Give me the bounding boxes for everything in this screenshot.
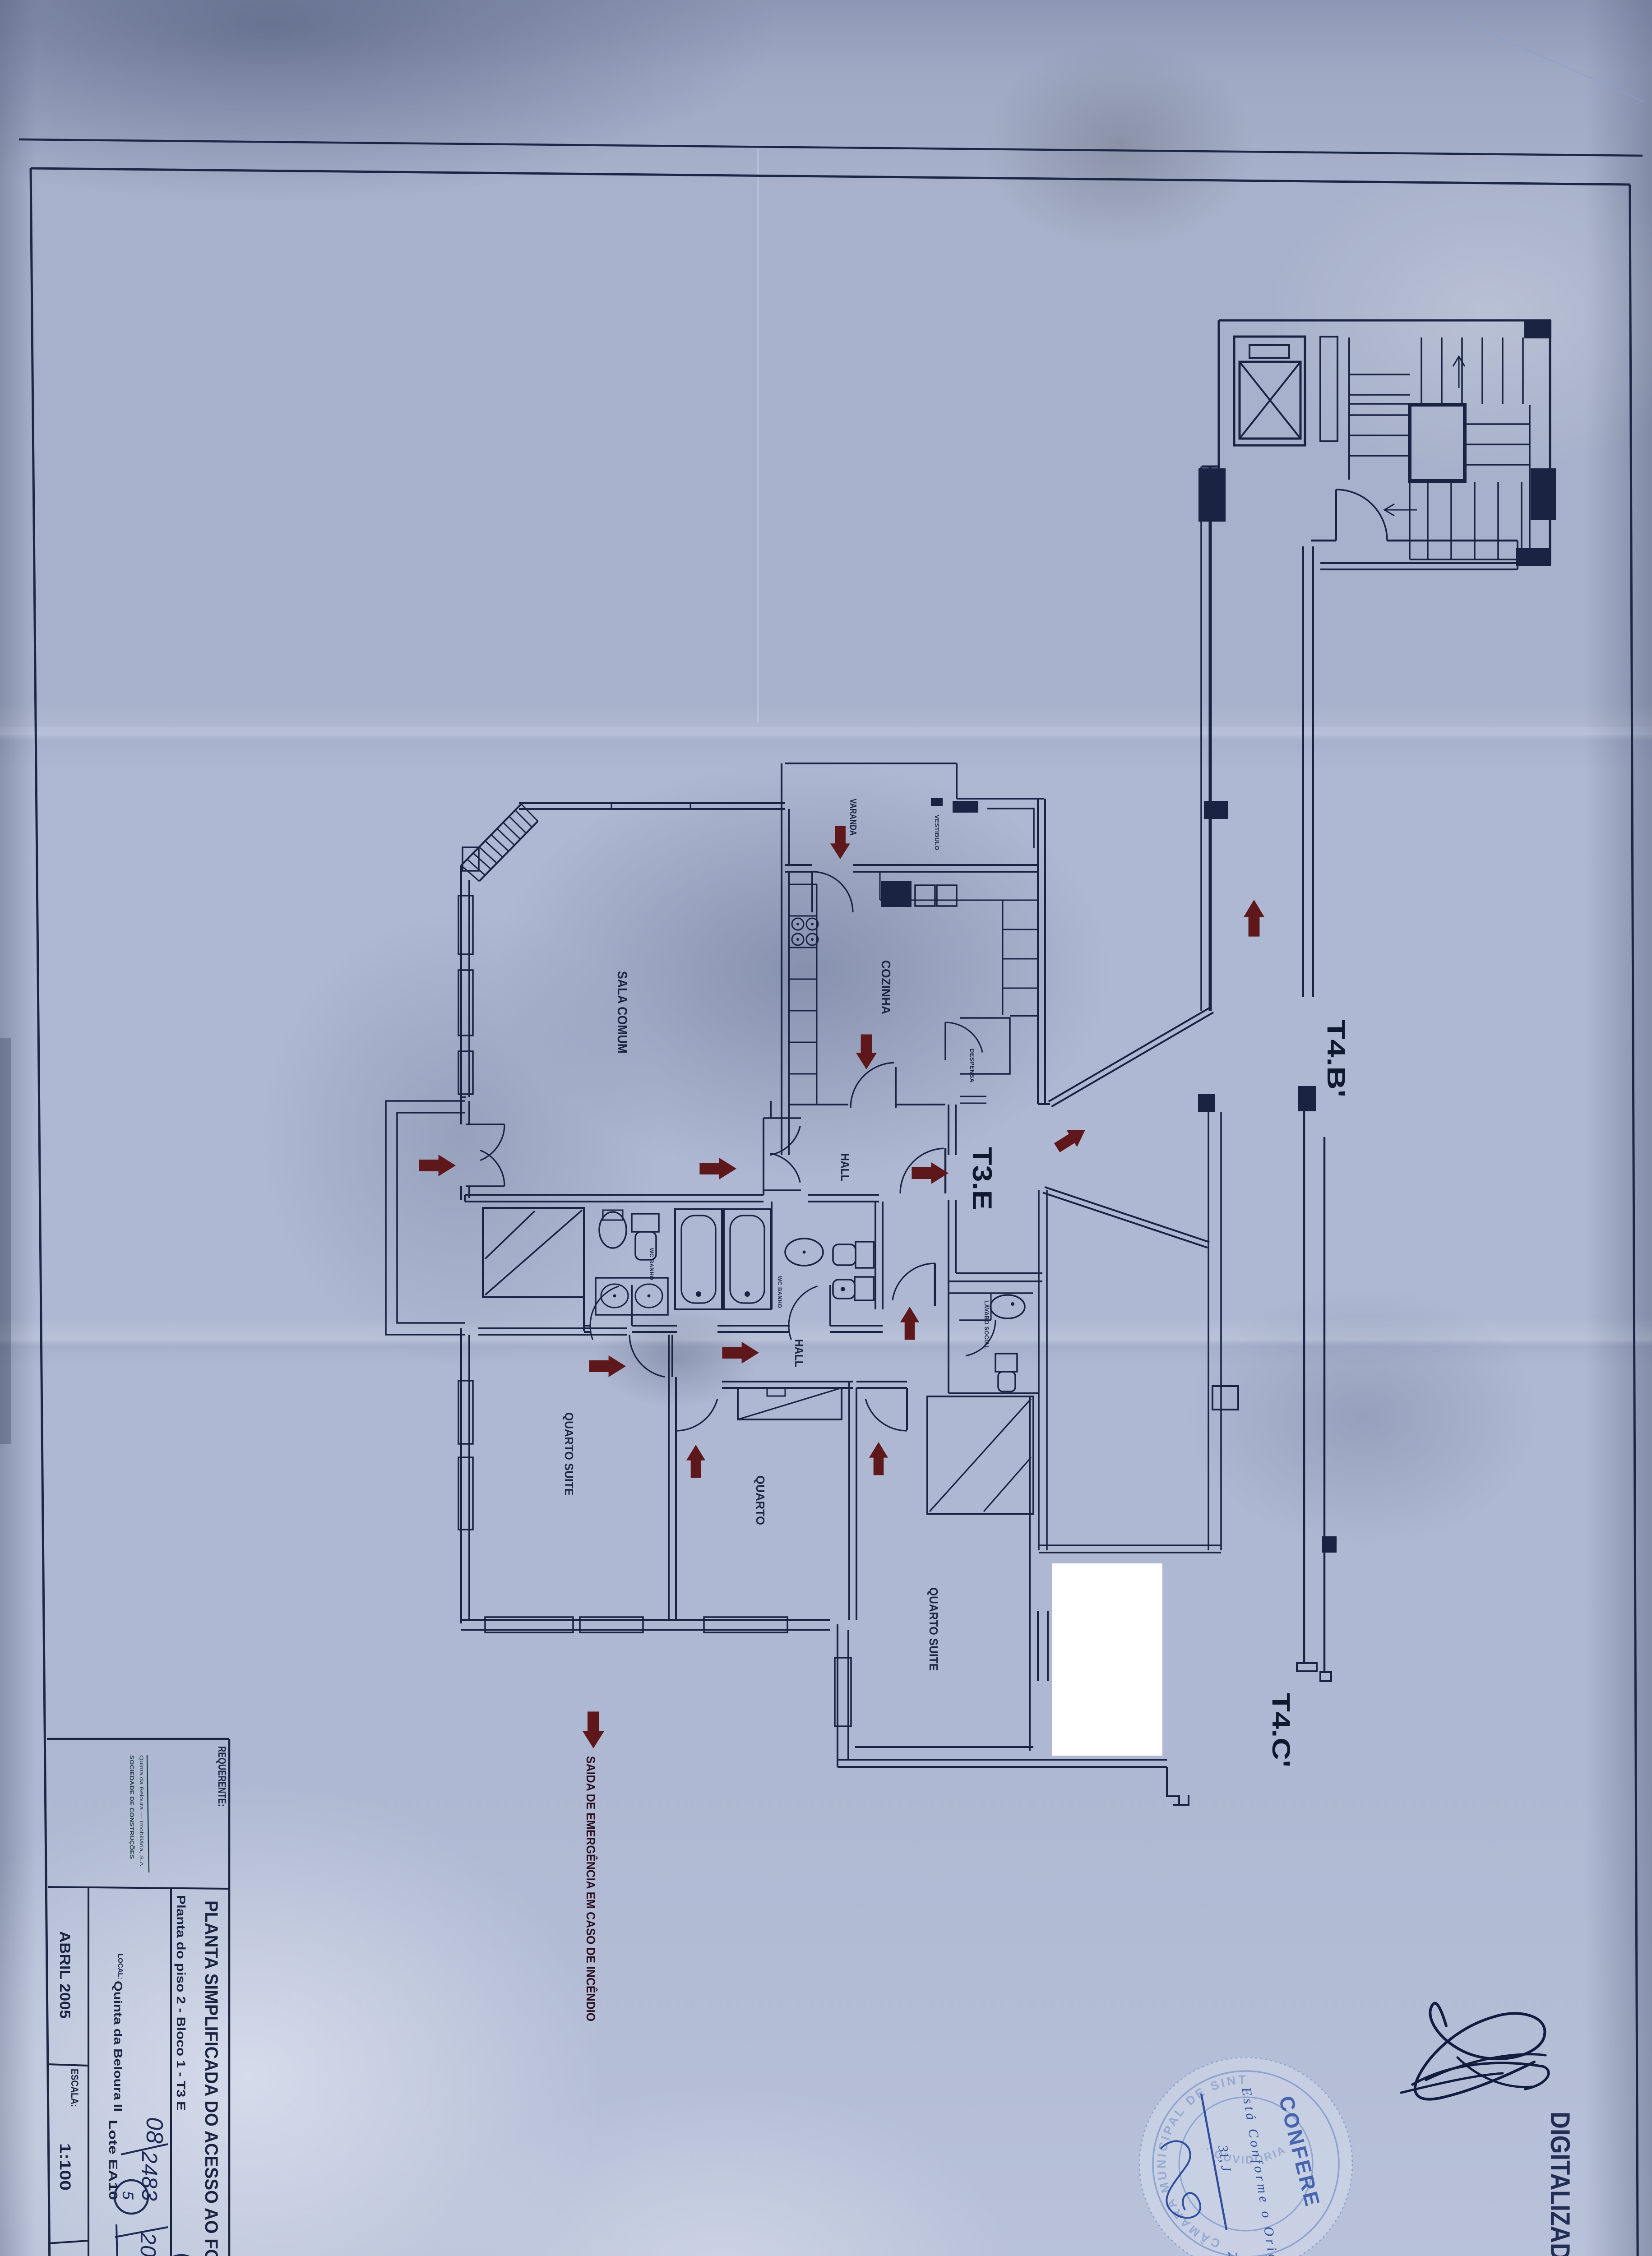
svg-text:VARANDA: VARANDA bbox=[848, 799, 858, 836]
svg-text:T4.C': T4.C' bbox=[1267, 1693, 1296, 1767]
svg-text:REQUERENTE:: REQUERENTE: bbox=[216, 1746, 228, 1807]
svg-text:ABRIL 2005: ABRIL 2005 bbox=[57, 1931, 73, 2019]
svg-text:QUARTO SUITE: QUARTO SUITE bbox=[562, 1412, 576, 1496]
svg-text:Planta do piso 2 - Bloco 1 - T: Planta do piso 2 - Bloco 1 - T3 E bbox=[174, 1895, 188, 2111]
svg-text:QUARTO: QUARTO bbox=[754, 1475, 767, 1525]
svg-text:08: 08 bbox=[141, 2117, 167, 2144]
svg-text:T4.B': T4.B' bbox=[1322, 1020, 1351, 1097]
svg-text:HALL: HALL bbox=[838, 1153, 852, 1181]
svg-text:PLANTA SIMPLIFICADA DO ACESSO: PLANTA SIMPLIFICADA DO ACESSO AO FOGO bbox=[201, 1900, 221, 2256]
svg-text:SALA COMUM: SALA COMUM bbox=[615, 971, 629, 1054]
svg-text:T3.E: T3.E bbox=[967, 1147, 997, 1210]
svg-text:HALL: HALL bbox=[792, 1339, 806, 1367]
svg-text:2001: 2001 bbox=[136, 2232, 160, 2256]
svg-text:LOCAL:: LOCAL: bbox=[116, 1954, 124, 1979]
svg-text:1:100: 1:100 bbox=[56, 2143, 74, 2191]
svg-text:LAVABO SOCIAL: LAVABO SOCIAL bbox=[983, 1300, 990, 1349]
svg-text:WC BANHO: WC BANHO bbox=[777, 1276, 783, 1308]
svg-text:ESCALA:: ESCALA: bbox=[69, 2069, 80, 2107]
svg-text:Quinta da Beloura — Imobiliári: Quinta da Beloura — Imobiliária, S.A. bbox=[139, 1755, 144, 1868]
svg-text:5: 5 bbox=[119, 2191, 136, 2200]
svg-text:2483: 2483 bbox=[137, 2151, 161, 2201]
svg-text:Quinta da Beloura II: Quinta da Beloura II bbox=[111, 1981, 124, 2112]
svg-text:SAIDA DE EMERGÊNCIA EM CASO DE: SAIDA DE EMERGÊNCIA EM CASO DE INCÊNDIO bbox=[584, 1756, 598, 2021]
svg-text:QUARTO SUITE: QUARTO SUITE bbox=[927, 1587, 940, 1671]
svg-text:DIGITALIZADO: DIGITALIZADO bbox=[1545, 2112, 1575, 2256]
svg-text:SOCIEDADE DE CONSTRUÇÕES: SOCIEDADE DE CONSTRUÇÕES bbox=[129, 1755, 135, 1859]
svg-text:COZINHA: COZINHA bbox=[879, 960, 893, 1014]
svg-text:VESTIBULO: VESTIBULO bbox=[934, 815, 940, 851]
svg-text:WC BANHO: WC BANHO bbox=[648, 1248, 655, 1280]
svg-text:DESPENSA: DESPENSA bbox=[969, 1049, 976, 1083]
